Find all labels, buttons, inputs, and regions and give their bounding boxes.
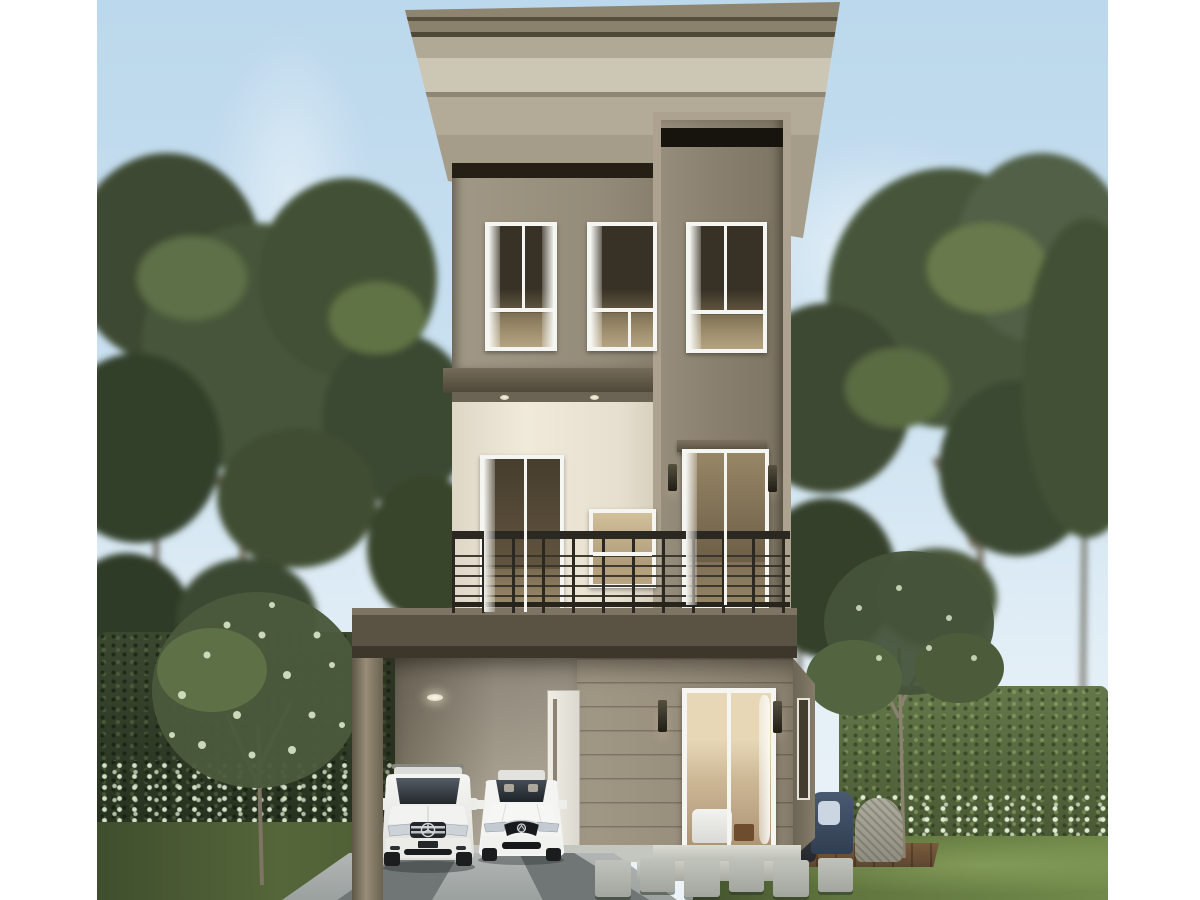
third-floor-window-1 xyxy=(485,222,557,351)
suv xyxy=(378,740,478,875)
window-transom xyxy=(591,308,653,312)
railing-posts xyxy=(452,531,790,613)
window-mullion xyxy=(724,226,727,310)
paver xyxy=(595,860,631,897)
tower-band xyxy=(661,128,783,147)
window-transom xyxy=(593,552,652,556)
soffit xyxy=(452,392,662,402)
side-window xyxy=(797,698,810,800)
curtain-icon xyxy=(489,226,500,347)
tower-window xyxy=(686,222,767,353)
sconce-2f-right xyxy=(768,465,777,492)
paver xyxy=(640,858,676,892)
window-transom xyxy=(690,310,763,314)
window-mullion xyxy=(724,453,727,605)
curtain-icon xyxy=(690,226,701,349)
curtain-icon xyxy=(542,226,553,347)
paver xyxy=(684,860,720,897)
third-floor-band xyxy=(452,163,662,178)
lr-stile xyxy=(727,693,731,850)
balcony-railing xyxy=(452,531,790,613)
downlight-1 xyxy=(500,395,509,400)
sconce-1f-left xyxy=(658,700,667,732)
paver xyxy=(818,858,854,892)
curtain-icon xyxy=(484,459,495,612)
stepping-stones xyxy=(595,858,853,900)
carport-ceiling-light xyxy=(427,694,443,701)
railing-bottom xyxy=(452,602,790,607)
lr-table xyxy=(734,824,754,841)
paver xyxy=(773,860,809,897)
carport-post xyxy=(352,658,383,900)
lr-sofa xyxy=(692,809,732,843)
curtain-icon xyxy=(591,226,602,347)
downlight-2 xyxy=(590,395,599,400)
paver xyxy=(729,858,765,892)
scene xyxy=(97,0,1108,900)
window-mullion xyxy=(522,226,525,308)
sconce-1f-right xyxy=(773,701,782,733)
lr-curtain xyxy=(759,695,770,844)
side-wall xyxy=(793,658,815,858)
sedan xyxy=(474,752,569,867)
window-mullion xyxy=(628,308,631,347)
house xyxy=(97,0,1108,900)
balcony-slab xyxy=(352,608,797,658)
curtain-icon xyxy=(686,453,697,605)
living-room-door xyxy=(682,688,776,855)
third-floor-window-2 xyxy=(587,222,657,351)
sconce-2f-left xyxy=(668,464,677,491)
floor-slab xyxy=(443,368,667,393)
window-mullion xyxy=(524,459,527,612)
window-transom xyxy=(489,308,553,312)
